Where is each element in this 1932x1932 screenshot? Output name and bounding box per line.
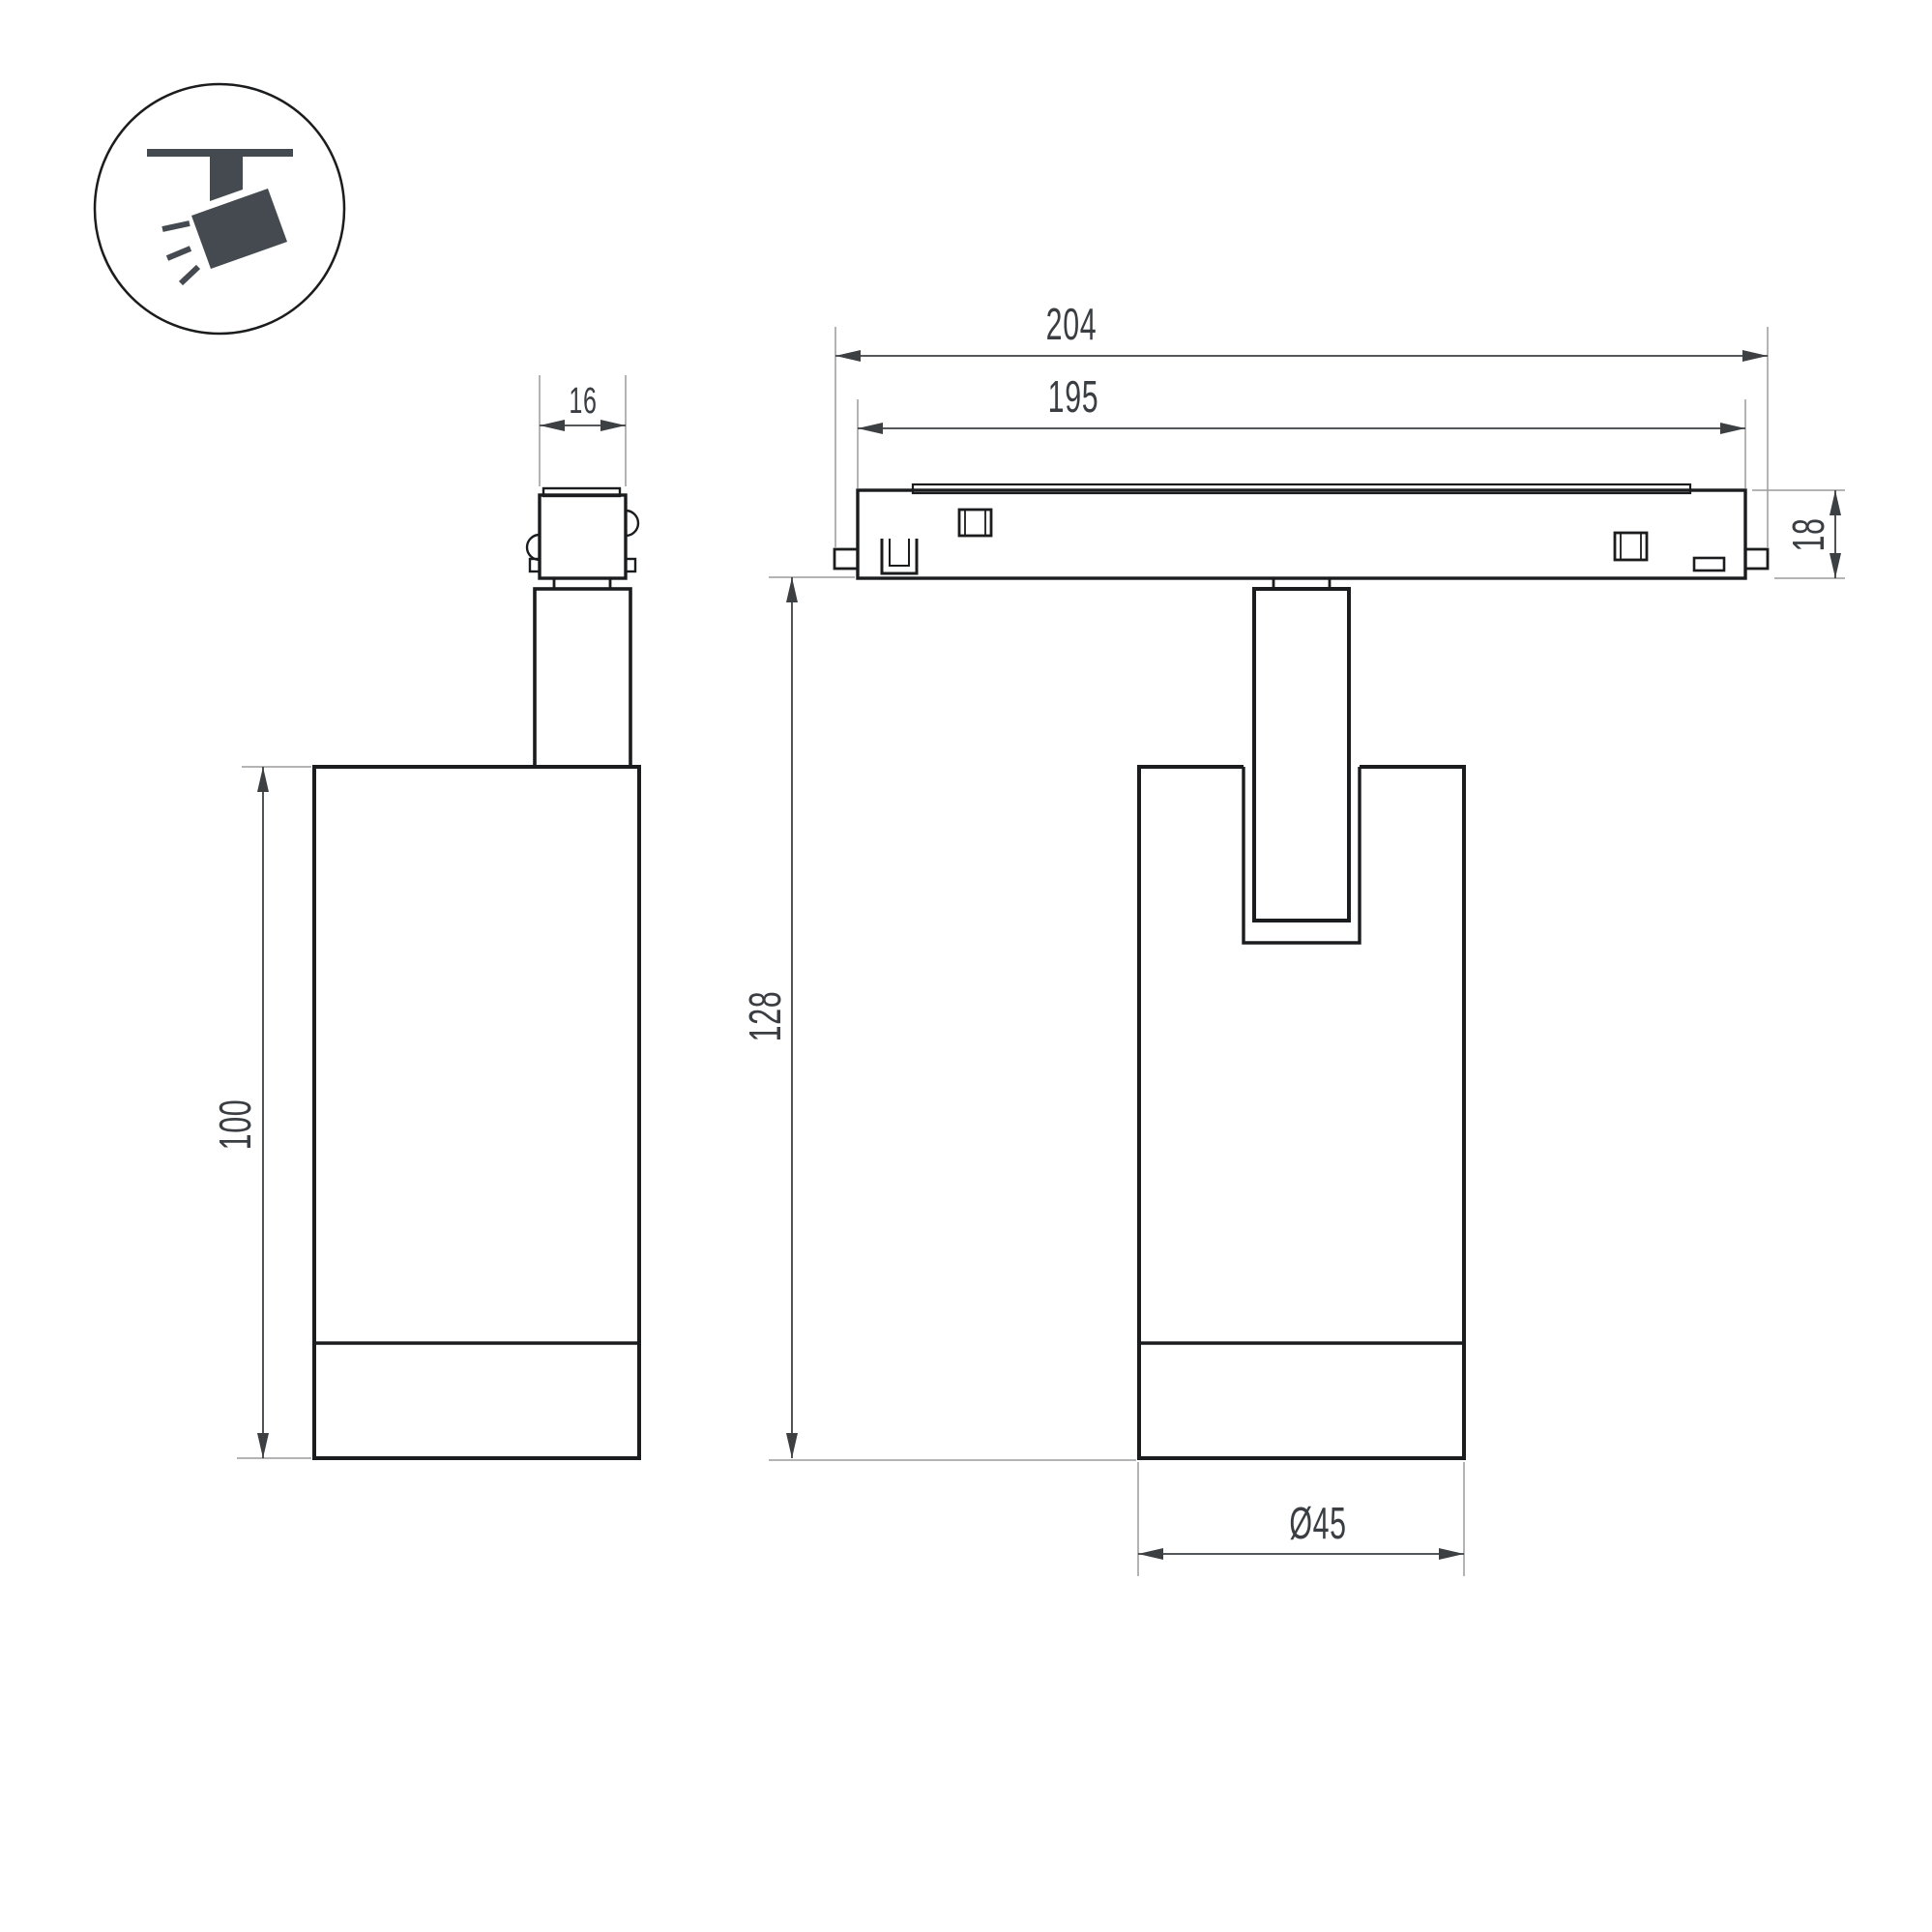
- dim-label-track-length-overall: 204: [1046, 302, 1098, 346]
- dim-label-track-length-inner: 195: [1048, 374, 1099, 419]
- dimension-128: [769, 577, 1136, 1460]
- side-lamp-body: [314, 767, 639, 1458]
- front-track-connector-left: [959, 510, 991, 536]
- front-track-slot-detail: [1694, 558, 1724, 571]
- front-track-left-tab: [834, 549, 858, 569]
- dim-label-body-diameter: Ø45: [1289, 1501, 1346, 1545]
- side-adapter-right-ear: [626, 511, 638, 536]
- front-track-clip-outer: [882, 539, 917, 573]
- side-adapter-left-ear: [527, 535, 540, 560]
- side-adapter-box: [540, 495, 626, 578]
- dim-label-track-height: 18: [1786, 517, 1830, 551]
- dimension-204: [835, 327, 1768, 547]
- front-lamp-body: [1139, 767, 1464, 1458]
- front-track-clip-inner: [890, 539, 909, 566]
- front-lamp-slot: [1244, 767, 1360, 943]
- technical-drawing-canvas: [0, 0, 1932, 1932]
- dimension-195: [858, 399, 1745, 488]
- front-view: [834, 484, 1768, 1458]
- dim-label-adapter-width: 16: [569, 383, 597, 420]
- dim-label-body-height: 100: [213, 1099, 257, 1151]
- track-spotlight-icon: [95, 84, 344, 334]
- front-track-connector-right: [1615, 533, 1647, 560]
- front-track-right-tab: [1745, 549, 1768, 569]
- front-stem: [1254, 589, 1349, 921]
- technical-drawing-page: 16 100 204 195 18 128 Ø45: [0, 0, 1932, 1932]
- side-stem: [535, 589, 630, 767]
- side-view: [314, 488, 639, 1458]
- dim-label-overall-height: 128: [743, 991, 787, 1042]
